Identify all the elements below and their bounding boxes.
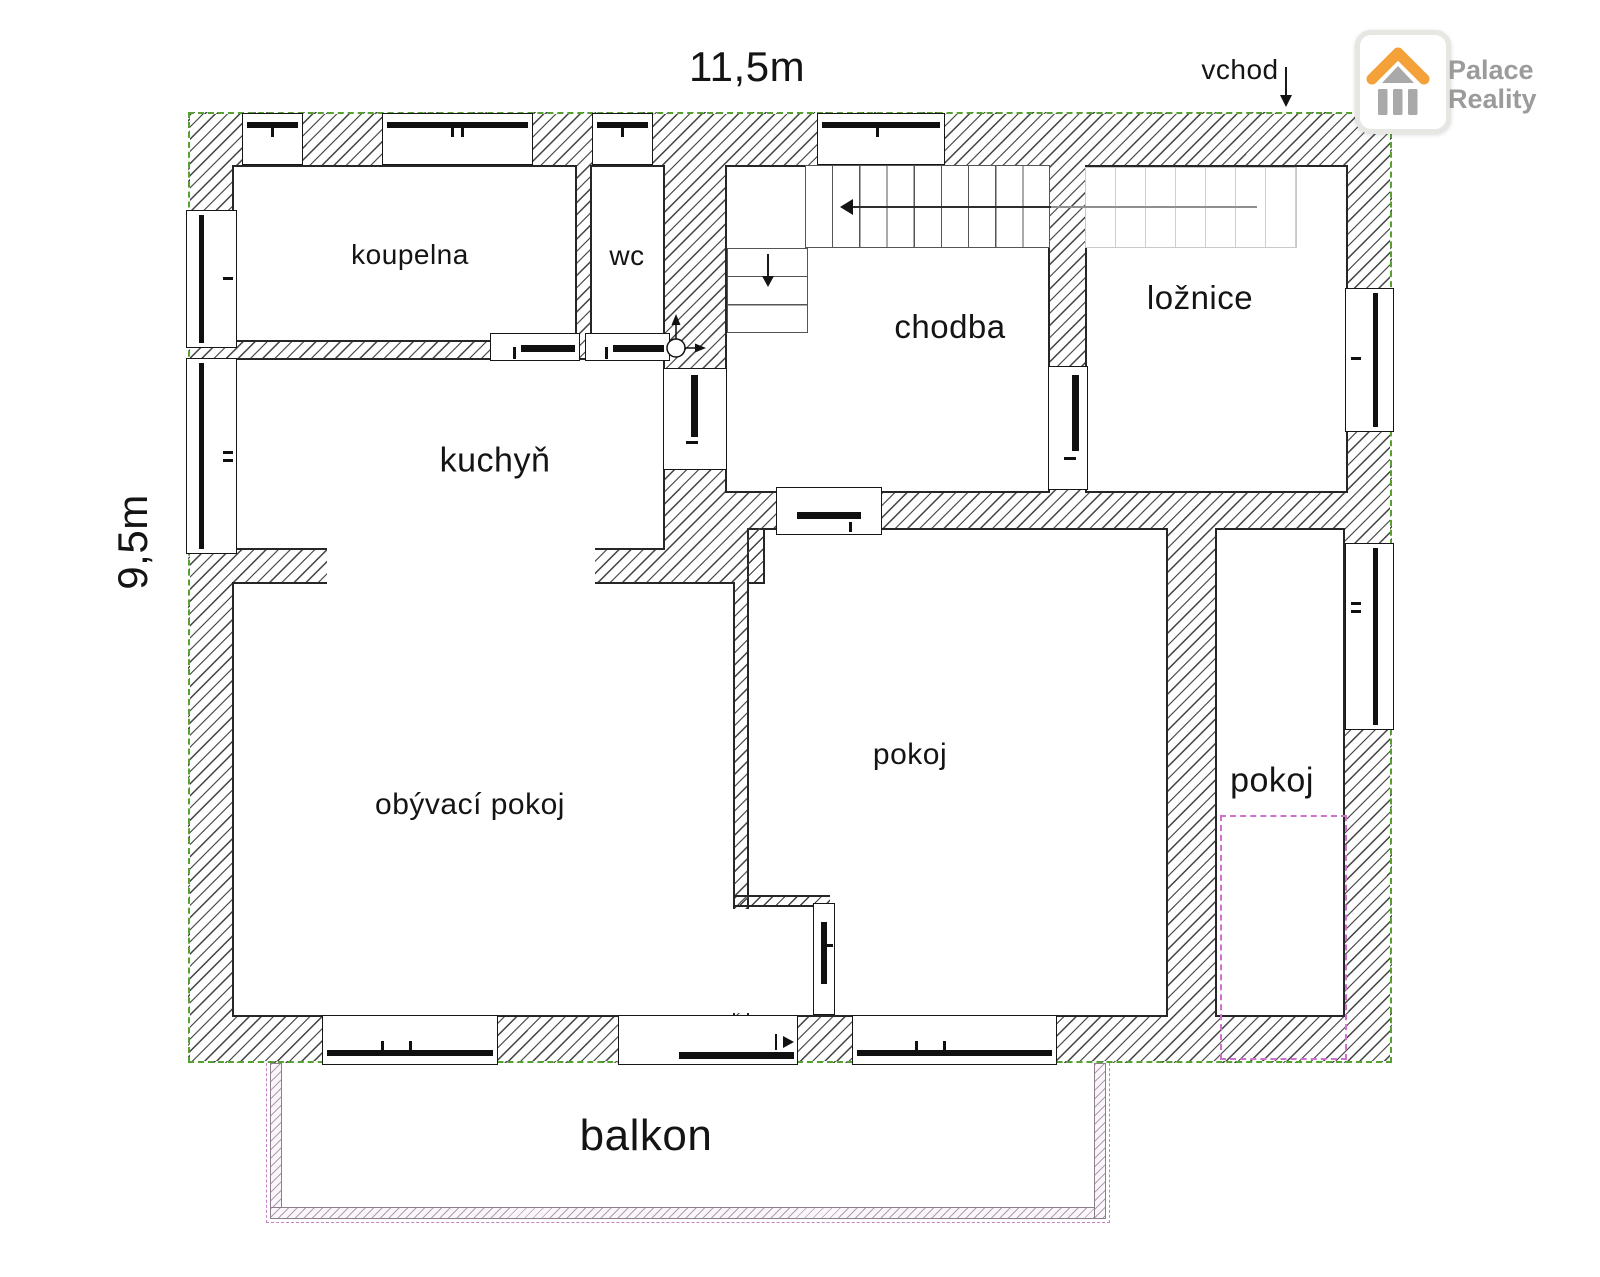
dimension-height-label: 9,5m xyxy=(109,494,157,589)
room-label-wc: wc xyxy=(609,240,644,272)
balkon-wall-bottom xyxy=(270,1207,1106,1219)
palace-reality-logo-text: Palace Reality xyxy=(1448,56,1537,114)
door-chodba-pokoj xyxy=(776,487,882,535)
entrance-label: vchod xyxy=(1201,54,1278,86)
dimension-width-label: 11,5m xyxy=(689,43,805,91)
door-obyvaci-pokoj xyxy=(813,903,835,1015)
room-label-chodba: chodba xyxy=(894,308,1005,346)
house-icon xyxy=(1360,35,1436,119)
window-top-koupelna-1 xyxy=(242,113,303,165)
entrance-arrow-line xyxy=(1285,67,1287,97)
balkon-wall-left xyxy=(270,1063,282,1219)
opening-kuchyn-obyvaci xyxy=(327,546,595,586)
window-left-kuchyn xyxy=(186,358,237,554)
balkon-wall-right xyxy=(1094,1063,1106,1219)
opening-obyvaci-door-strip xyxy=(730,909,818,1013)
planned-area-dashed xyxy=(1220,815,1347,1060)
room-label-loznice: ložnice xyxy=(1147,279,1253,317)
window-top-koupelna-2 xyxy=(382,113,533,165)
door-loznice xyxy=(1048,366,1088,490)
room-label-obyvaci-pokoj: obývací pokoj xyxy=(375,788,565,822)
door-swing-marker-icon xyxy=(652,312,708,360)
window-bottom-obyvaci xyxy=(322,1015,498,1065)
room-label-pokoj-pravy: pokoj xyxy=(1230,762,1314,801)
room-label-koupelna: koupelna xyxy=(351,239,469,271)
stairs-down-line xyxy=(767,254,769,278)
wall-chunk-kuchyn-se xyxy=(747,528,765,584)
room-label-kuchyn: kuchyň xyxy=(440,442,551,481)
door-balkon xyxy=(618,1015,798,1065)
door-kuchyn-chodba xyxy=(663,368,727,470)
window-top-chodba xyxy=(817,113,945,165)
stairs-down-arrow-icon xyxy=(762,276,774,287)
window-right-loznice xyxy=(1345,288,1394,432)
palace-reality-logo-badge xyxy=(1355,30,1451,134)
window-top-wc xyxy=(592,113,653,165)
room-label-balkon: balkon xyxy=(580,1111,713,1161)
stairs-direction-line xyxy=(853,206,1257,208)
stairs-direction-arrow-icon xyxy=(840,199,853,215)
logo-line-2: Reality xyxy=(1448,85,1537,114)
entrance-arrow-icon xyxy=(1280,95,1292,107)
logo-line-1: Palace xyxy=(1448,56,1537,85)
room-label-pokoj-stredni: pokoj xyxy=(873,738,947,772)
window-left-koupelna xyxy=(186,210,237,348)
window-right-pokoj xyxy=(1345,543,1394,730)
floor-plan-canvas: koupelna wc chodba ložnice kuchyň obývac… xyxy=(0,0,1600,1277)
door-koupelna xyxy=(490,333,580,361)
window-bottom-pokoj xyxy=(852,1015,1057,1065)
